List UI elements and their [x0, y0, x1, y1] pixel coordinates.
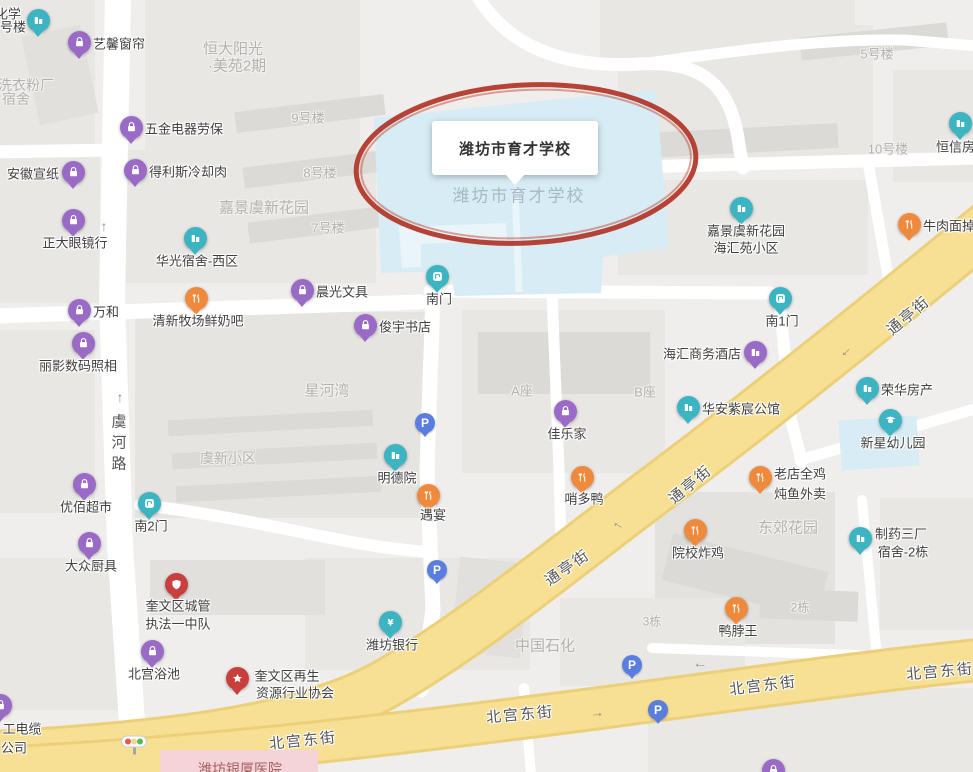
poi-label-chengguan-brigade[interactable]: 执法一中队 [145, 614, 210, 633]
poi-label-chengguan-brigade[interactable]: 奎文区城管 [145, 596, 210, 615]
poi-label-delisi-meat[interactable]: 得利斯冷却肉 [149, 162, 227, 181]
pin-tail [360, 336, 370, 347]
pin-tail [855, 549, 865, 560]
poi-label-wanhe[interactable]: 万和 [93, 302, 119, 321]
poi-pin-delisi-meat[interactable] [124, 159, 147, 192]
food-icon [417, 484, 440, 507]
bag-icon [762, 759, 785, 772]
poi-pin-laodian-chicken[interactable] [749, 466, 772, 499]
gate-icon [769, 287, 792, 310]
bag-icon [68, 31, 91, 54]
poi-pin-chem-dorm[interactable] [27, 9, 50, 42]
poi-pin-recycling-association[interactable] [226, 667, 249, 700]
poi-label-anhui-paper[interactable]: 安徽宣纸 [7, 164, 59, 183]
poi-pin-chenguang-stationery[interactable] [291, 279, 314, 312]
food-icon [749, 466, 772, 489]
bag-icon [73, 473, 96, 496]
pin-tail [654, 719, 662, 728]
poi-pin-junyu-bookstore[interactable] [354, 314, 377, 347]
bag-icon [78, 532, 101, 555]
pin-tail [126, 138, 136, 149]
poi-label-jiajing-haihuiyuan[interactable]: 海汇苑小区 [713, 238, 778, 257]
poi-label-qingxin-milk-bar[interactable]: 清新牧场鲜奶吧 [152, 311, 243, 330]
poi-label-yabowang[interactable]: 鸭脖王 [718, 621, 757, 640]
poi-label-haihui-hotel[interactable]: 海汇商务酒店 [663, 344, 741, 363]
poi-pin-wanhe[interactable] [68, 299, 91, 332]
poi-label-yixin-curtains[interactable]: 艺馨窗帘 [93, 34, 145, 53]
bag-icon [124, 159, 147, 182]
poi-pin-wujin-labor[interactable] [120, 116, 143, 149]
pin-tail [683, 418, 693, 429]
building-icon [949, 112, 972, 135]
cap-icon [879, 409, 902, 432]
poi-pin-beef-noodle[interactable] [898, 213, 921, 246]
poi-label-jialejia[interactable]: 佳乐家 [547, 424, 586, 443]
poi-label-liying-photo[interactable]: 丽影数码照相 [39, 356, 117, 375]
parking-icon[interactable]: P [648, 700, 668, 728]
school-callout-label: 潍坊市育才学校 [459, 138, 571, 159]
poi-pin-ronghua-realty[interactable] [856, 377, 879, 410]
poi-label-chem-dorm[interactable]: 号楼 [0, 17, 26, 36]
pin-tail [433, 579, 441, 588]
building-icon [856, 377, 879, 400]
food-icon [185, 287, 208, 310]
poi-label-laodian-chicken[interactable]: 炖鱼外卖 [774, 484, 826, 503]
bag-icon [0, 694, 12, 717]
parking-p-glyph: P [415, 413, 435, 433]
bag-icon [354, 314, 377, 337]
pin-tail [68, 183, 78, 194]
poi-label-huaan-mansion[interactable]: 华安紫宸公馆 [702, 399, 780, 418]
poi-label-mingde-yuan[interactable]: 明德院 [377, 468, 416, 487]
poi-label-zhiyao-dorm[interactable]: 制药三厂 [875, 524, 927, 543]
food-icon [898, 213, 921, 236]
gate-icon [138, 492, 161, 515]
pin-tail [297, 301, 307, 312]
poi-pin-anhui-paper[interactable] [62, 161, 85, 194]
poi-label-cable-company[interactable]: 工电缆 [2, 719, 41, 738]
poi-label-beef-noodle[interactable]: 牛肉面掉渣 [923, 216, 973, 235]
poi-label-zhengda-glasses[interactable]: 正大眼镜行 [42, 233, 107, 252]
pin-tail [628, 674, 636, 683]
poi-layer: 化学号楼艺馨窗帘五金电器劳保安徽宣纸得利斯冷却肉正大眼镜行万和丽影数码照相晨光文… [0, 0, 973, 772]
poi-pin-haihui-hotel[interactable] [744, 341, 767, 374]
poi-label-zhiyao-dorm[interactable]: 宿舍-2栋 [878, 542, 929, 561]
building-icon [849, 527, 872, 550]
food-icon [725, 597, 748, 620]
poi-label-huaguang-dorm[interactable]: 华光宿舍-西区 [156, 251, 238, 270]
building-icon [384, 444, 407, 467]
poi-label-xinxing-kindergarten[interactable]: 新星幼儿园 [860, 433, 925, 452]
poi-label-wujin-labor[interactable]: 五金电器劳保 [145, 119, 223, 138]
bag-icon [120, 116, 143, 139]
poi-label-dazhong-kitchen[interactable]: 大众厨具 [65, 556, 117, 575]
pin-tail [33, 31, 43, 42]
pin-tail [862, 399, 872, 410]
school-callout-bubble[interactable]: 潍坊市育才学校 [432, 121, 598, 175]
badge-icon [165, 573, 188, 596]
pin-tail [232, 689, 242, 700]
svg-text:¥: ¥ [387, 618, 393, 628]
bank-icon: ¥ [379, 611, 402, 634]
food-icon [684, 519, 707, 542]
poi-pin-huaan-mansion[interactable] [677, 396, 700, 429]
poi-label-hengxin-realty[interactable]: 恒信房产 [936, 137, 973, 156]
poi-label-chenguang-stationery[interactable]: 晨光文具 [316, 282, 368, 301]
bag-icon [62, 209, 85, 232]
bag-icon [141, 640, 164, 663]
star-icon [226, 667, 249, 690]
bag-icon [554, 400, 577, 423]
poi-label-shaoduoya[interactable]: 哨多鸭 [564, 489, 603, 508]
parking-p-glyph: P [648, 700, 668, 720]
poi-pin-edge-shop[interactable] [762, 759, 785, 772]
poi-pin-zhiyao-dorm[interactable] [849, 527, 872, 560]
poi-label-recycling-association[interactable]: 资源行业协会 [256, 683, 334, 702]
poi-label-weifang-bank[interactable]: 潍坊银行 [366, 635, 418, 654]
poi-label-beigong-bath[interactable]: 北宫浴池 [128, 664, 180, 683]
gate-icon [426, 265, 449, 288]
bag-icon [62, 161, 85, 184]
bag-icon [72, 332, 95, 355]
building-icon [730, 197, 753, 220]
pin-tail [130, 181, 140, 192]
poi-label-junyu-bookstore[interactable]: 俊宇书店 [379, 317, 431, 336]
pin-tail [74, 53, 84, 64]
poi-pin-yixin-curtains[interactable] [68, 31, 91, 64]
poi-label-yuyan[interactable]: 遇宴 [420, 505, 446, 524]
pin-tail [755, 488, 765, 499]
pin-tail [750, 363, 760, 374]
building-icon [744, 341, 767, 364]
bag-icon [291, 279, 314, 302]
food-icon [571, 466, 594, 489]
map-viewport[interactable]: 恒大阳光·美苑2期洗衣粉厂宿舍9号楼8号楼嘉景虞新花园7号楼5号楼10号楼8号楼… [0, 0, 973, 772]
parking-icon[interactable]: P [622, 655, 642, 683]
parking-icon[interactable]: P [415, 413, 435, 441]
pin-tail [421, 432, 429, 441]
poi-label-laodian-chicken[interactable]: 老店全鸡 [774, 464, 826, 483]
poi-label-south-gate-1[interactable]: 南1门 [765, 311, 798, 330]
poi-label-youbai-market[interactable]: 优佰超市 [60, 497, 112, 516]
parking-p-glyph: P [622, 655, 642, 675]
building-icon [677, 396, 700, 419]
poi-label-south-gate[interactable]: 南门 [426, 289, 452, 308]
bag-icon [68, 299, 91, 322]
parking-p-glyph: P [427, 560, 447, 580]
poi-label-yuanxiao-fried-chicken[interactable]: 院校炸鸡 [672, 543, 724, 562]
pin-tail [904, 235, 914, 246]
poi-label-cable-company[interactable]: 公司 [1, 738, 27, 757]
parking-icon[interactable]: P [427, 560, 447, 588]
pin-tail [74, 321, 84, 332]
building-icon [184, 227, 207, 250]
building-icon [27, 9, 50, 32]
poi-label-ronghua-realty[interactable]: 荣华房产 [881, 380, 933, 399]
poi-label-south-gate-2[interactable]: 南2门 [134, 516, 167, 535]
